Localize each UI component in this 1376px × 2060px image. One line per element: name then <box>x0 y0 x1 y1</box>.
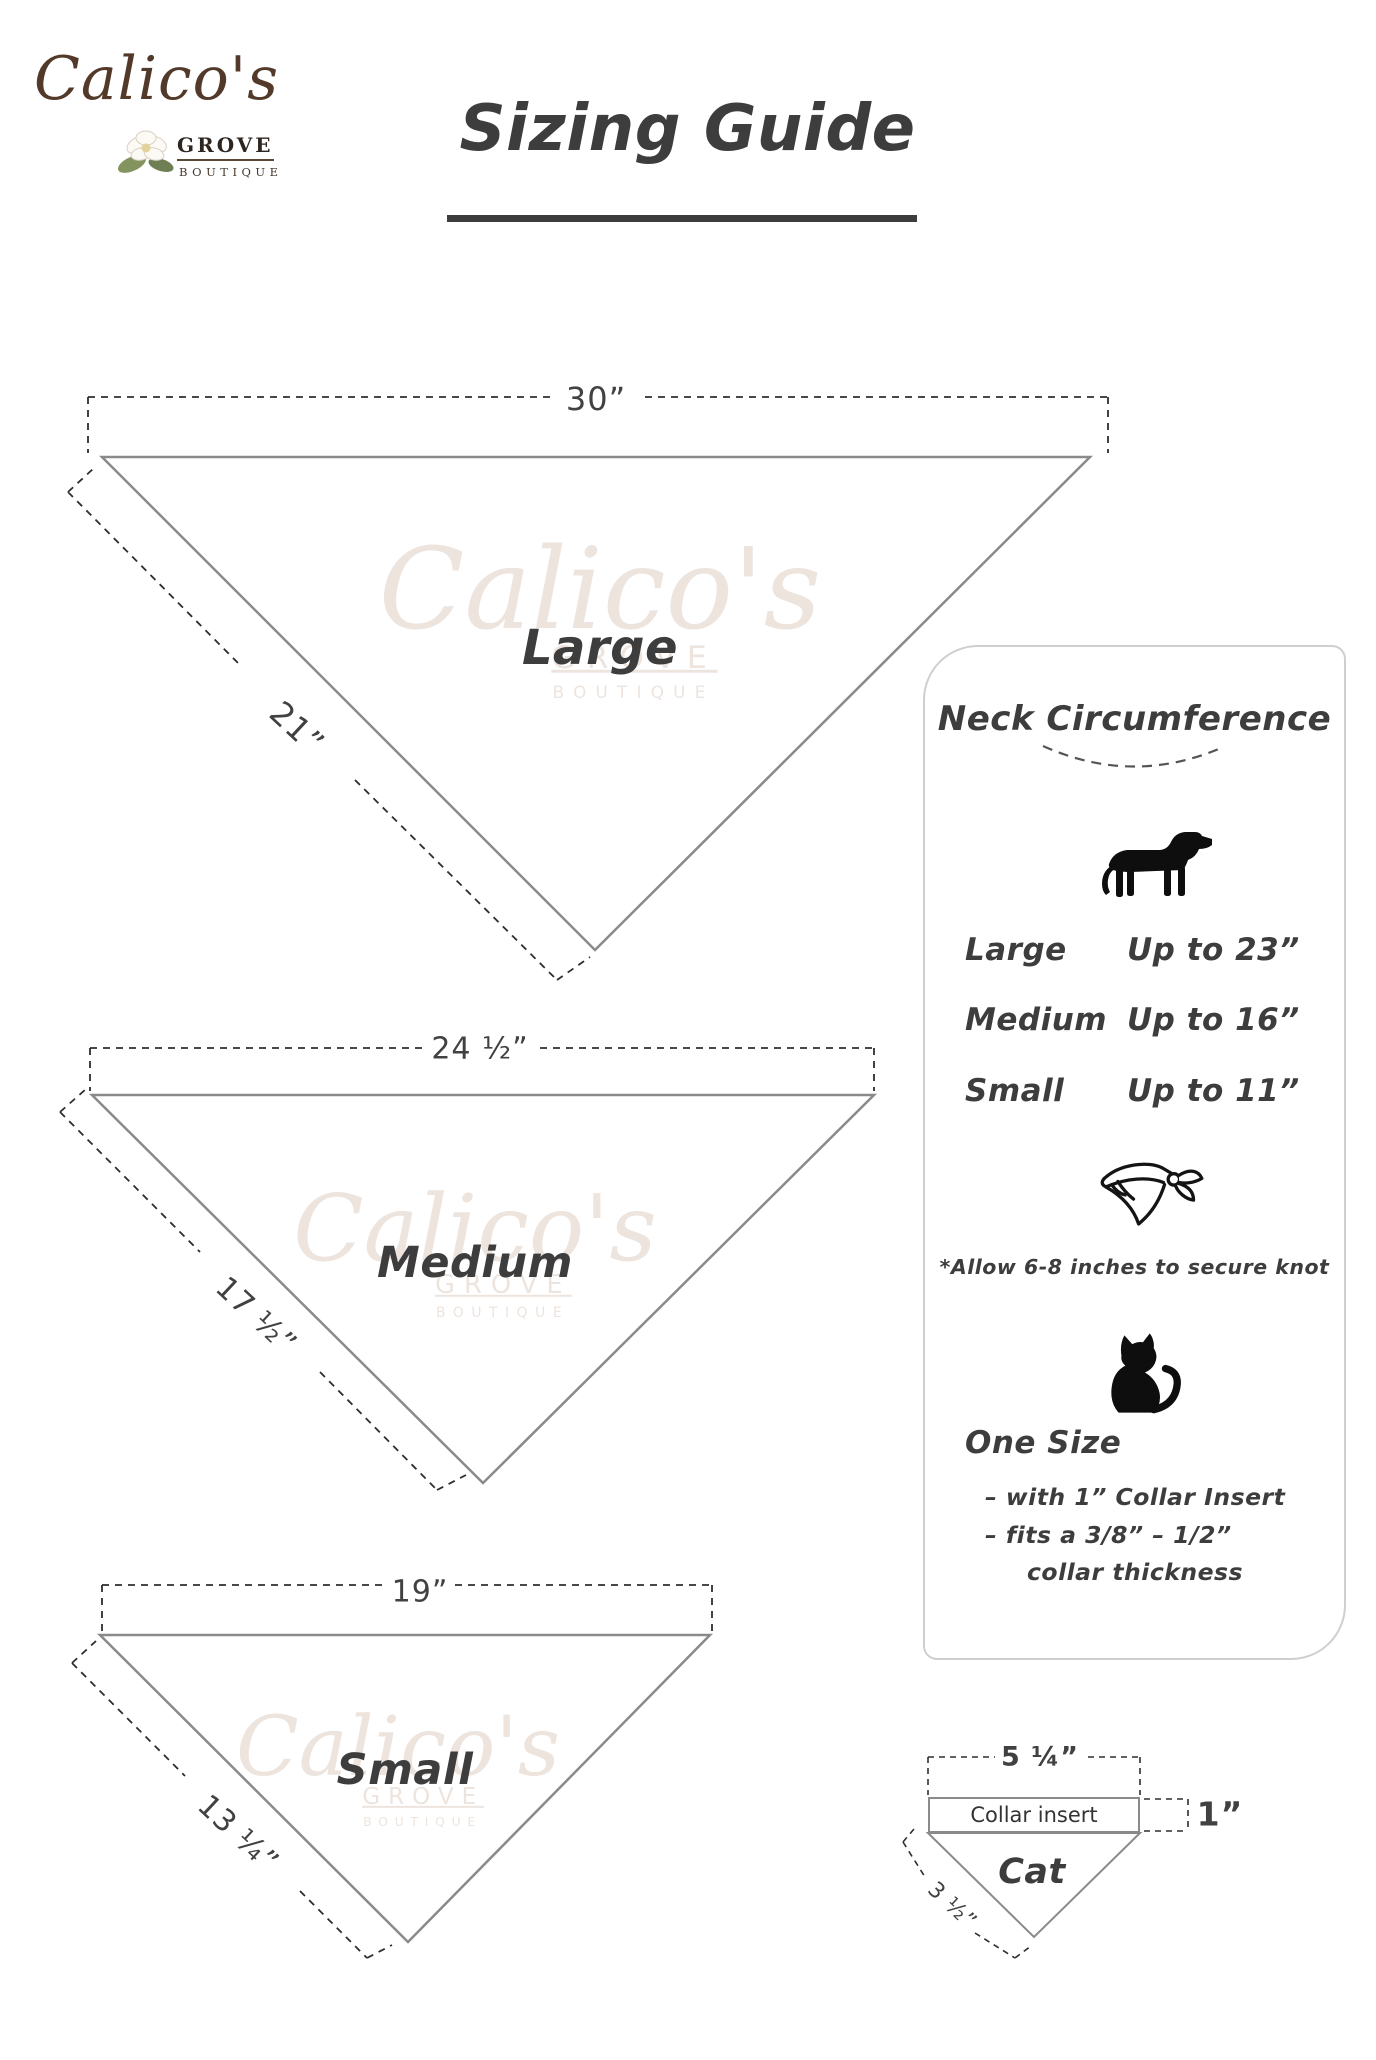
cat-top-width-label: 5 ¼” <box>1001 1742 1079 1773</box>
size-row-medium: Medium Up to 16” <box>965 1002 1313 1038</box>
size-value: Up to 16” <box>1127 1002 1300 1038</box>
logo-calicos: Calico's <box>34 44 279 114</box>
dashed-swoosh <box>1037 742 1227 778</box>
logo-boutique: BOUTIQUE <box>179 165 283 179</box>
size-label: Medium <box>965 1002 1127 1038</box>
medium-size-name: Medium <box>377 1238 573 1288</box>
large-size-name: Large <box>522 620 678 676</box>
large-top-width-label: 30” <box>566 380 626 418</box>
medium-top-width-label: 24 ½” <box>431 1032 528 1067</box>
page-title: Sizing Guide <box>435 92 940 166</box>
size-label: Small <box>965 1073 1127 1109</box>
panel-heading: Neck Circumference <box>925 699 1344 739</box>
cat-silhouette-icon <box>1098 1325 1186 1421</box>
collar-insert-box: Collar insert <box>928 1797 1140 1833</box>
size-value: Up to 23” <box>1127 932 1300 968</box>
one-size-heading: One Size <box>965 1425 1121 1461</box>
size-row-large: Large Up to 23” <box>965 932 1313 968</box>
small-top-width-label: 19” <box>392 1575 449 1610</box>
sizing-guide-page: Calico's GROVE BOUTIQUE Sizing Guide Cal… <box>0 0 1376 2060</box>
one-size-line3: collar thickness <box>1027 1558 1243 1586</box>
cat-size-name: Cat <box>998 1852 1066 1892</box>
logo-grove: GROVE <box>177 133 274 161</box>
magnolia-flower-icon <box>116 124 178 176</box>
collar-height-label: 1” <box>1197 1795 1244 1834</box>
tied-bandana-icon <box>1091 1149 1207 1245</box>
size-value: Up to 11” <box>1127 1073 1300 1109</box>
title-underline <box>447 215 917 222</box>
knot-note: *Allow 6-8 inches to secure knot <box>939 1255 1330 1279</box>
size-label: Large <box>965 932 1127 968</box>
small-size-name: Small <box>337 1745 474 1795</box>
dog-silhouette-icon <box>1095 825 1215 917</box>
one-size-line2: – fits a 3/8” – 1/2” <box>985 1521 1232 1549</box>
collar-insert-label: Collar insert <box>970 1803 1097 1827</box>
neck-circumference-panel: Neck Circumference Large Up to 23” Mediu… <box>923 645 1346 1660</box>
size-row-small: Small Up to 11” <box>965 1073 1313 1109</box>
one-size-line1: – with 1” Collar Insert <box>985 1483 1285 1511</box>
